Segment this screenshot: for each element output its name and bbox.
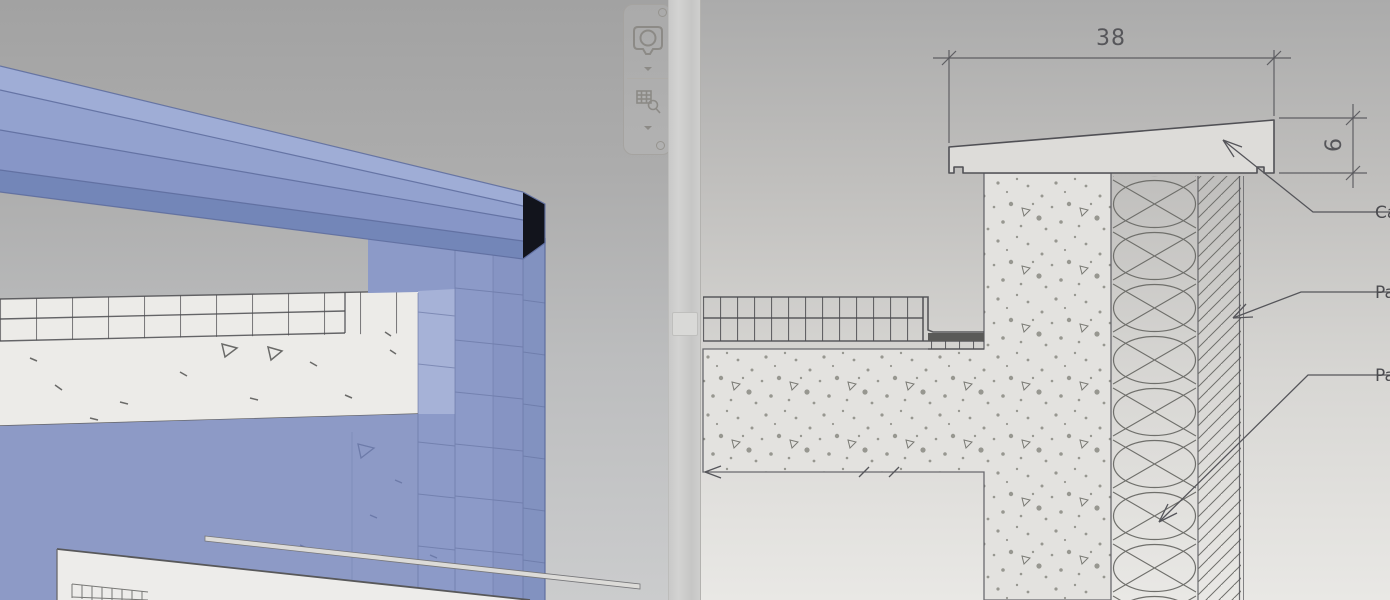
callout-pa-2-label[interactable]: Pa — [1375, 366, 1390, 386]
zoom-region-icon — [630, 87, 666, 121]
steering-wheel-icon — [630, 23, 666, 63]
dimension-38-value[interactable]: 38 — [1096, 26, 1126, 51]
detail-drawing-canvas[interactable]: 38 6 Ca Pa — [701, 0, 1390, 600]
view-splitter[interactable] — [668, 0, 702, 600]
callout-ca-label[interactable]: Ca — [1375, 203, 1390, 223]
navbar-options-icon[interactable] — [656, 141, 665, 150]
concrete-section[interactable] — [703, 173, 1111, 600]
zoom-dropdown-caret-icon[interactable] — [644, 126, 652, 130]
coping-profile[interactable] — [949, 120, 1274, 173]
navigation-bar[interactable] — [623, 4, 672, 155]
application-window: 38 6 Ca Pa — [0, 0, 1390, 600]
splitter-handle[interactable] — [672, 312, 698, 336]
insulation-layer[interactable] — [1111, 176, 1198, 600]
dimension-6[interactable]: 6 — [1279, 104, 1367, 188]
render-hatch-layer[interactable] — [1198, 176, 1244, 600]
navbar-divider — [627, 78, 668, 79]
3d-view-pane[interactable] — [0, 0, 690, 600]
detail-drawing-pane[interactable]: 38 6 Ca Pa — [700, 0, 1390, 600]
steering-wheel-dropdown-caret-icon[interactable] — [644, 67, 652, 71]
coping-3d-selected[interactable] — [0, 66, 545, 259]
screed-mesh-band[interactable] — [703, 297, 984, 349]
navbar-pin-icon[interactable] — [658, 8, 667, 17]
3d-view-canvas[interactable] — [0, 0, 690, 600]
steering-wheel-button[interactable] — [624, 23, 671, 63]
zoom-button[interactable] — [624, 87, 671, 121]
callout-pa-1-label[interactable]: Pa — [1375, 283, 1390, 303]
floor-slab-3d[interactable] — [0, 291, 418, 426]
dimension-6-value[interactable]: 6 — [1322, 137, 1347, 152]
callout-pa-1[interactable]: Pa — [1233, 283, 1390, 318]
